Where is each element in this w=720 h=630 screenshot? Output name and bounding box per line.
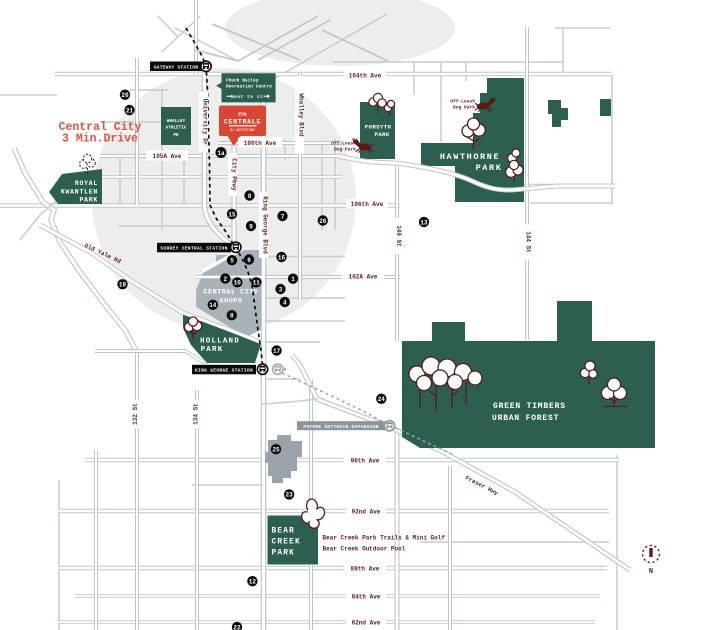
svg-text:GREEN TIMBERS: GREEN TIMBERS [493, 402, 566, 411]
svg-text:7: 7 [281, 213, 285, 220]
svg-text:SHOPS: SHOPS [220, 298, 243, 306]
svg-text:FUTURE SKYTRAIN EXPANSION: FUTURE SKYTRAIN EXPANSION [303, 424, 378, 430]
svg-text:CENTRALE: CENTRALE [224, 119, 261, 126]
svg-text:BEAR: BEAR [272, 528, 296, 536]
svg-text:PARK: PARK [79, 197, 98, 204]
svg-text:PARK: PARK [374, 131, 389, 138]
svg-text:10: 10 [234, 280, 242, 287]
svg-text:HAWTHORNE: HAWTHORNE [440, 152, 500, 162]
svg-text:105A Ave: 105A Ave [153, 153, 182, 160]
svg-text:PARK: PARK [201, 346, 224, 354]
svg-text:8: 8 [230, 313, 234, 320]
svg-text:24: 24 [378, 396, 386, 403]
svg-text:140 St: 140 St [395, 225, 402, 247]
svg-text:University Dr: University Dr [202, 99, 209, 146]
svg-text:GATEWAY STATION: GATEWAY STATION [154, 65, 198, 71]
svg-text:WHALLEY: WHALLEY [167, 119, 186, 124]
svg-text:1a: 1a [217, 150, 225, 157]
svg-text:3 Min.Drive: 3 Min.Drive [62, 133, 138, 146]
svg-text:25: 25 [272, 447, 280, 454]
svg-text:15: 15 [228, 211, 236, 218]
svg-text:2: 2 [223, 276, 227, 283]
svg-text:22: 22 [233, 624, 241, 630]
svg-text:ATHLETIC: ATHLETIC [165, 126, 186, 131]
svg-text:104th Ave: 104th Ave [349, 73, 382, 80]
svg-text:20: 20 [121, 92, 129, 99]
svg-text:23: 23 [285, 492, 293, 499]
svg-text:17: 17 [273, 348, 281, 355]
svg-text:84th Ave: 84th Ave [352, 594, 381, 601]
svg-text:4: 4 [283, 299, 287, 306]
svg-text:Bear Creek Park Trails & Mini: Bear Creek Park Trails & Mini Golf [323, 535, 446, 542]
svg-text:14: 14 [209, 302, 217, 309]
svg-text:92nd Ave: 92nd Ave [352, 509, 381, 516]
svg-text:106th Ave: 106th Ave [351, 201, 384, 208]
svg-text:9: 9 [249, 223, 253, 230]
svg-text:City Pkwy: City Pkwy [231, 158, 238, 191]
svg-text:Bear Creek Outdoor Pool: Bear Creek Outdoor Pool [323, 546, 406, 553]
svg-text:SURREY CENTRAL STATION: SURREY CENTRAL STATION [160, 246, 227, 252]
svg-text:Recreation Centre: Recreation Centre [226, 84, 272, 90]
svg-text:11: 11 [253, 280, 261, 287]
svg-text:CENTRAL CITY: CENTRAL CITY [204, 289, 259, 297]
svg-text:6: 6 [247, 257, 251, 264]
svg-text:100th Ave: 100th Ave [244, 140, 277, 147]
svg-text:King George Blvd: King George Blvd [262, 196, 269, 254]
svg-text:BY WESTSTONE: BY WESTSTONE [230, 129, 254, 133]
svg-text:19: 19 [119, 282, 127, 289]
svg-text:5: 5 [230, 258, 234, 265]
svg-text:N: N [649, 568, 653, 576]
svg-text:21: 21 [126, 107, 134, 114]
svg-text:88th Ave: 88th Ave [351, 566, 380, 573]
svg-text:96th Ave: 96th Ave [351, 458, 380, 465]
svg-text:Dog Park: Dog Park [334, 147, 356, 153]
svg-text:132 St: 132 St [132, 403, 139, 425]
svg-text:134 St: 134 St [193, 403, 200, 425]
svg-text:144 St: 144 St [525, 231, 532, 253]
svg-text:PARK: PARK [272, 550, 296, 558]
svg-text:HOLLAND: HOLLAND [200, 338, 240, 346]
svg-text:KING GEORGE STATION: KING GEORGE STATION [195, 368, 253, 374]
svg-text:KWANTLEN: KWANTLEN [61, 189, 98, 196]
svg-text:8: 8 [248, 193, 252, 200]
svg-text:Off-Leash: Off-Leash [331, 141, 356, 147]
svg-text:PARK: PARK [476, 163, 503, 173]
svg-text:12: 12 [249, 579, 257, 586]
svg-text:16: 16 [278, 254, 286, 261]
svg-text:PK: PK [173, 133, 179, 138]
svg-text:Dog Park: Dog Park [453, 105, 475, 111]
svg-text:URBAN FOREST: URBAN FOREST [492, 414, 559, 423]
svg-text:Chuck Bailey: Chuck Bailey [226, 78, 259, 84]
svg-text:FORSYTH: FORSYTH [365, 124, 392, 131]
svg-text:102A Ave: 102A Ave [349, 274, 378, 281]
svg-text:3: 3 [279, 286, 283, 293]
svg-text:ROYAL: ROYAL [75, 180, 98, 187]
svg-text:1: 1 [291, 276, 295, 283]
svg-text:Next to it: Next to it [231, 94, 263, 100]
svg-text:CREEK: CREEK [272, 539, 301, 547]
svg-text:Whalley Blvd: Whalley Blvd [298, 93, 305, 137]
svg-text:EVG: EVG [238, 112, 247, 118]
svg-text:26: 26 [319, 218, 327, 225]
svg-text:13: 13 [420, 219, 428, 226]
svg-text:82nd Ave: 82nd Ave [352, 620, 381, 627]
svg-text:Off-Leash: Off-Leash [450, 99, 475, 105]
